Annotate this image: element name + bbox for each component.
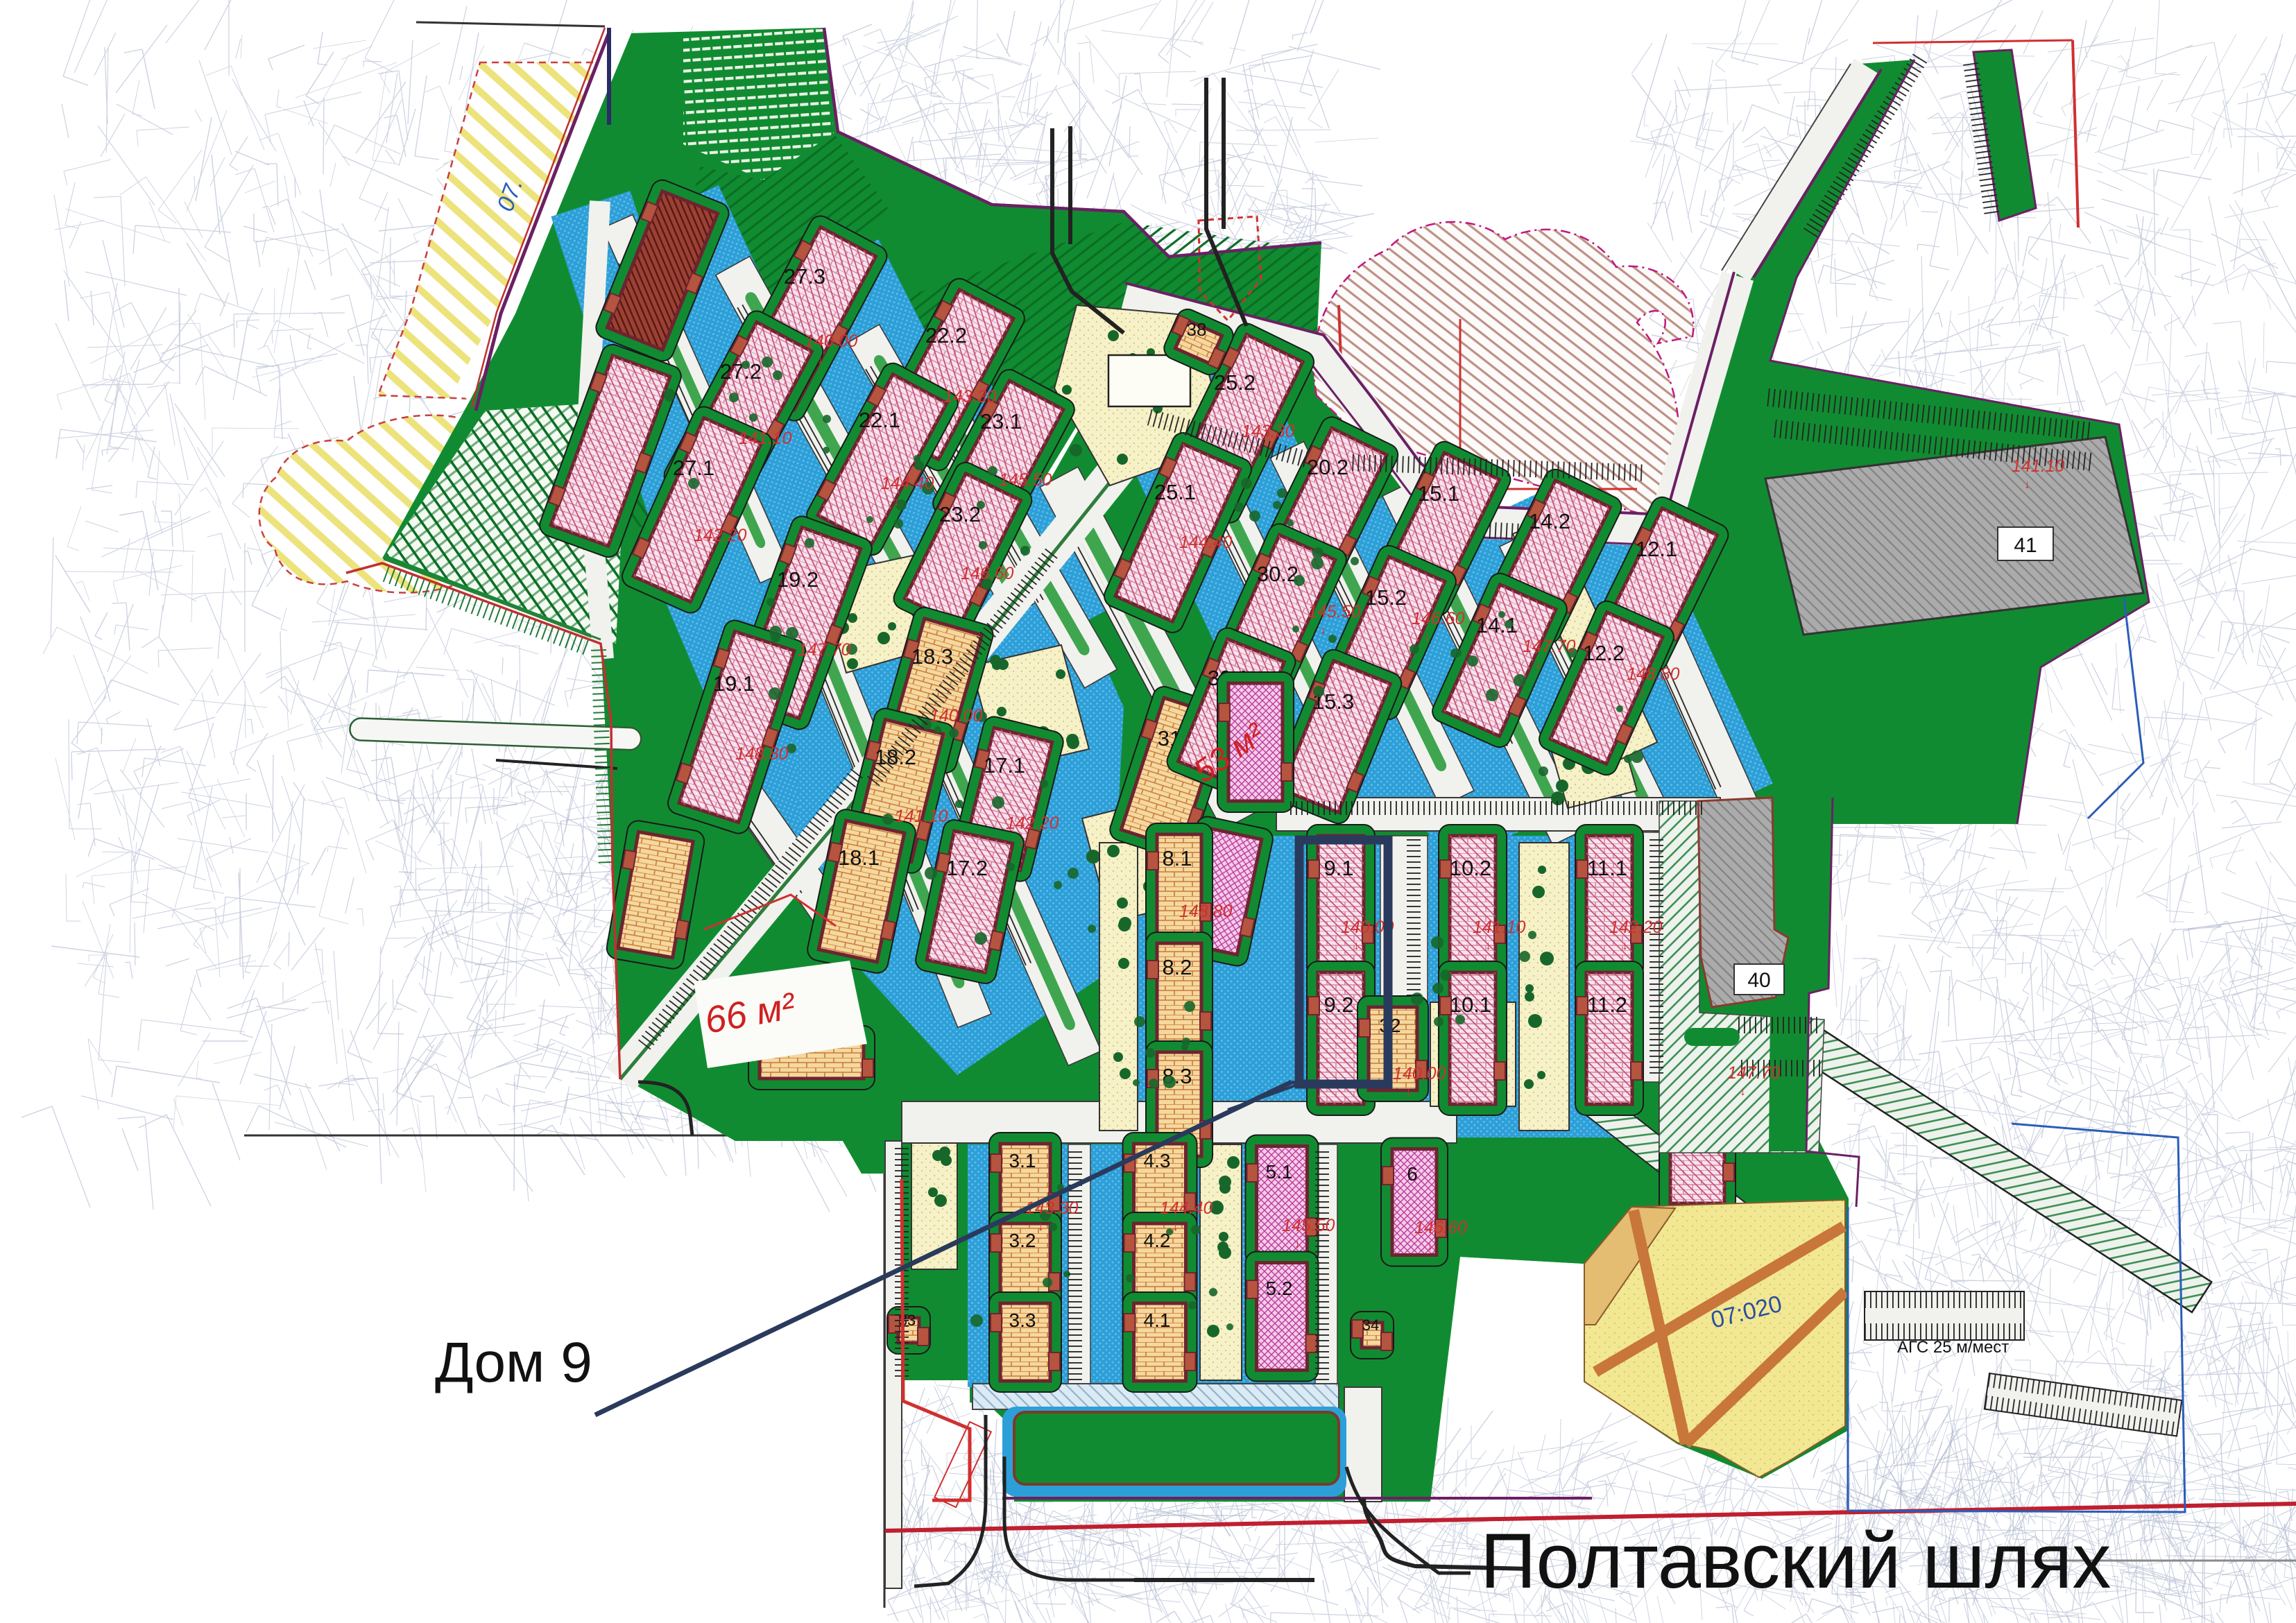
- svg-text:↓: ↓: [1424, 630, 1430, 644]
- svg-text:141.10: 141.10: [739, 429, 792, 448]
- svg-text:18.1: 18.1: [838, 845, 880, 870]
- svg-text:140.00: 140.00: [805, 332, 858, 351]
- svg-text:143.30: 143.30: [943, 387, 997, 406]
- svg-text:40: 40: [1747, 969, 1770, 992]
- svg-text:11.1: 11.1: [1587, 856, 1627, 880]
- svg-text:17.1: 17.1: [984, 753, 1025, 778]
- svg-text:↓: ↓: [810, 661, 816, 675]
- svg-text:27.1: 27.1: [673, 456, 714, 480]
- svg-text:↓: ↓: [907, 827, 914, 841]
- svg-text:22.2: 22.2: [925, 323, 967, 347]
- svg-text:144.40: 144.40: [1179, 533, 1233, 552]
- svg-text:23.1: 23.1: [980, 409, 1022, 433]
- svg-text:19.1: 19.1: [713, 671, 755, 696]
- svg-text:Дом 9: Дом 9: [435, 1331, 592, 1394]
- svg-text:↓: ↓: [1254, 443, 1260, 456]
- svg-text:25.2: 25.2: [1214, 370, 1256, 395]
- svg-text:10.1: 10.1: [1450, 993, 1491, 1017]
- svg-text:↓: ↓: [1011, 491, 1018, 505]
- svg-text:142.20: 142.20: [1609, 918, 1663, 937]
- svg-text:27.3: 27.3: [784, 264, 825, 289]
- svg-text:140.00: 140.00: [929, 706, 983, 725]
- svg-text:147.70: 147.70: [798, 640, 851, 660]
- svg-text:Полтавский шлях: Полтавский шлях: [1480, 1518, 2111, 1604]
- svg-text:↓: ↓: [956, 408, 962, 422]
- svg-text:25.1: 25.1: [1154, 480, 1196, 504]
- svg-text:17.2: 17.2: [946, 856, 988, 880]
- svg-text:141.10: 141.10: [895, 807, 948, 826]
- svg-text:↓: ↓: [1535, 658, 1541, 671]
- svg-text:23.2: 23.2: [939, 502, 981, 526]
- svg-text:141.10: 141.10: [2012, 456, 2065, 476]
- svg-text:147.70: 147.70: [1523, 637, 1576, 656]
- svg-text:↓: ↓: [893, 495, 900, 508]
- svg-text:↓: ↓: [1405, 1085, 1412, 1099]
- svg-text:27.2: 27.2: [720, 359, 762, 384]
- svg-text:143.30: 143.30: [1242, 422, 1295, 441]
- svg-text:143.30: 143.30: [1025, 1199, 1079, 1218]
- svg-text:↓: ↓: [1172, 1219, 1179, 1233]
- svg-text:148.80: 148.80: [1179, 902, 1233, 921]
- svg-text:14.2: 14.2: [1529, 509, 1570, 533]
- svg-text:20.2: 20.2: [1307, 455, 1348, 479]
- svg-text:22.1: 22.1: [859, 408, 900, 432]
- svg-text:145.50: 145.50: [1308, 602, 1361, 621]
- svg-text:19.2: 19.2: [777, 567, 819, 592]
- svg-text:145.50: 145.50: [1282, 1216, 1335, 1235]
- svg-text:147.70: 147.70: [1727, 1063, 1781, 1083]
- svg-text:34: 34: [1362, 1316, 1379, 1334]
- svg-text:↓: ↓: [1740, 1084, 1746, 1098]
- svg-text:3.3: 3.3: [1009, 1309, 1036, 1331]
- svg-text:6: 6: [1407, 1163, 1418, 1185]
- svg-text:38: 38: [1187, 319, 1207, 340]
- svg-text:8.2: 8.2: [1162, 955, 1192, 979]
- svg-text:АГС 25 м/мест: АГС 25 м/мест: [1897, 1338, 2009, 1357]
- svg-text:15.2: 15.2: [1365, 585, 1407, 610]
- svg-text:4.1: 4.1: [1144, 1309, 1171, 1331]
- svg-text:141.10: 141.10: [1473, 918, 1526, 937]
- svg-text:↓: ↓: [748, 765, 754, 779]
- svg-text:↓: ↓: [706, 547, 712, 560]
- svg-text:5.2: 5.2: [1266, 1278, 1293, 1299]
- svg-text:↓: ↓: [1427, 1239, 1433, 1253]
- svg-text:5.1: 5.1: [1266, 1161, 1293, 1183]
- svg-text:↓: ↓: [817, 352, 823, 366]
- svg-text:12.1: 12.1: [1636, 537, 1677, 561]
- svg-text:↓: ↓: [1639, 685, 1645, 699]
- svg-text:10.2: 10.2: [1450, 856, 1491, 880]
- svg-text:146.60: 146.60: [961, 564, 1014, 583]
- svg-text:30.2: 30.2: [1257, 562, 1299, 586]
- svg-text:142.20: 142.20: [1006, 814, 1059, 833]
- svg-text:↓: ↓: [1038, 1219, 1044, 1233]
- svg-text:↓: ↓: [1320, 623, 1326, 637]
- svg-text:3.1: 3.1: [1009, 1150, 1036, 1171]
- svg-text:148.80: 148.80: [1627, 664, 1680, 684]
- svg-text:144.40: 144.40: [1160, 1199, 1213, 1218]
- svg-text:↓: ↓: [1622, 938, 1628, 952]
- svg-text:146.60: 146.60: [1412, 609, 1465, 628]
- svg-text:11.2: 11.2: [1587, 993, 1627, 1017]
- svg-text:148.80: 148.80: [735, 744, 789, 764]
- svg-text:↓: ↓: [1192, 922, 1198, 936]
- svg-text:9.1: 9.1: [1323, 856, 1353, 880]
- svg-text:144.40: 144.40: [881, 474, 934, 493]
- svg-text:15.1: 15.1: [1418, 481, 1459, 506]
- svg-text:3.2: 3.2: [1009, 1230, 1036, 1251]
- svg-text:146.60: 146.60: [1414, 1218, 1468, 1237]
- svg-text:↓: ↓: [1018, 834, 1025, 848]
- svg-text:↓: ↓: [1353, 938, 1360, 952]
- svg-text:12.2: 12.2: [1583, 641, 1625, 665]
- svg-text:↓: ↓: [1485, 938, 1491, 952]
- svg-text:142.20: 142.20: [694, 526, 747, 545]
- svg-text:8.1: 8.1: [1162, 846, 1192, 870]
- svg-text:↓: ↓: [2024, 477, 2030, 491]
- svg-text:18.3: 18.3: [911, 644, 953, 669]
- svg-text:↓: ↓: [942, 727, 948, 741]
- svg-text:41: 41: [2014, 534, 2037, 557]
- svg-text:145.50: 145.50: [999, 470, 1052, 490]
- svg-text:↓: ↓: [1294, 1237, 1301, 1251]
- svg-text:↓: ↓: [751, 449, 757, 463]
- svg-text:↓: ↓: [973, 585, 979, 599]
- svg-text:↓: ↓: [1192, 553, 1198, 567]
- svg-text:140.00: 140.00: [1393, 1064, 1446, 1083]
- svg-text:9.2: 9.2: [1323, 993, 1353, 1017]
